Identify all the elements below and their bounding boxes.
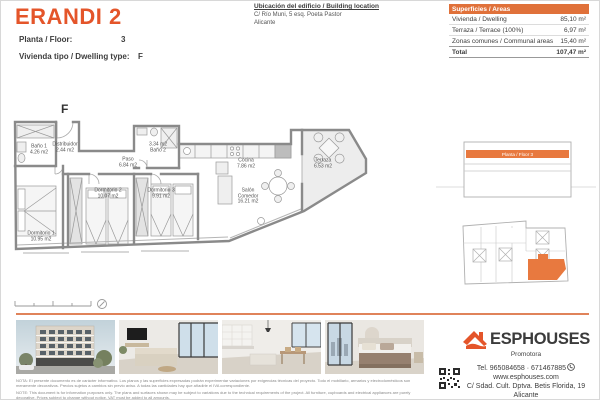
location-city: Alicante bbox=[254, 19, 424, 27]
balcony-rails bbox=[23, 251, 189, 253]
photo-bedroom bbox=[325, 320, 424, 374]
armchair bbox=[216, 162, 228, 174]
photo-strip bbox=[16, 320, 424, 374]
building-location: Ubicación del edificio / Building locati… bbox=[254, 3, 424, 27]
legal-notes: NOTA: El presente documento es de caráct… bbox=[16, 378, 428, 400]
room-label-dormitorio3: Dormitorio 39.91 m2 bbox=[147, 188, 174, 199]
table-row: Zonas comunes / Communal areas 15,40 m² bbox=[449, 36, 589, 47]
toilet bbox=[18, 154, 25, 163]
toilet bbox=[151, 128, 158, 136]
total-label: Total bbox=[452, 49, 467, 56]
photo-living-room bbox=[119, 320, 218, 374]
scale-bar bbox=[13, 297, 111, 311]
page-title: ERANDI 2 bbox=[15, 4, 122, 30]
photo-building-exterior bbox=[16, 320, 115, 374]
location-address: C/ Río Muni, 5 esq. Poeta Pastor bbox=[254, 11, 424, 19]
row-value: 6,97 m² bbox=[564, 27, 586, 34]
areas-table: Superficies / Areas Vivienda / Dwelling … bbox=[449, 4, 589, 58]
brand-subtitle: Promotora bbox=[456, 351, 596, 358]
note-english: NOTE: This document is for information p… bbox=[16, 390, 428, 400]
room-label-bano2: 3.34 m2Baño 2 bbox=[149, 142, 167, 153]
room-label-terraza: Terraza6.53 m2 bbox=[314, 158, 332, 169]
row-value: 85,10 m² bbox=[560, 16, 586, 23]
row-value: 15,40 m² bbox=[560, 38, 586, 45]
table-total-row: Total 107,47 m² bbox=[449, 47, 589, 58]
room-label-distribuidor: Distribuidor2.44 m2 bbox=[52, 142, 77, 153]
room-label-bano1: Baño 14.26 m2 bbox=[30, 144, 48, 155]
note-spanish: NOTA: El presente documento es de caráct… bbox=[16, 378, 428, 389]
brand-city: Alicante bbox=[456, 391, 596, 400]
row-label: Terraza / Terrace (100%) bbox=[452, 27, 523, 34]
brand-address: C/ Sdad. Cult. Dptva. Betis Florida, 19 bbox=[456, 382, 596, 391]
floor-row: Planta / Floor: 3 bbox=[19, 35, 72, 44]
floor-lamp bbox=[258, 218, 265, 225]
kitchen-sink bbox=[184, 148, 191, 155]
location-title: Ubicación del edificio / Building locati… bbox=[254, 3, 424, 11]
room-label-dormitorio2: Dormitorio 210.07 m2 bbox=[94, 188, 121, 199]
divider-rule bbox=[16, 313, 589, 315]
brand-logo: ESPHOUSES bbox=[456, 329, 596, 350]
building-key-diagrams: Planta / Floor 3 bbox=[436, 131, 596, 303]
room-label-paso: Paso6.84 m2 bbox=[119, 157, 137, 168]
sink bbox=[17, 142, 26, 152]
table-row: Terraza / Terrace (100%) 6,97 m² bbox=[449, 25, 589, 36]
sofa bbox=[218, 176, 232, 204]
room-label-salon-comedor: SalónComedor16.21 m2 bbox=[238, 189, 259, 206]
dwelling-type-label: Vivienda tipo / Dwelling type: bbox=[19, 52, 130, 61]
kitchen-counter bbox=[179, 144, 291, 158]
brand-block: ESPHOUSES Promotora Tel. 965084658 · 671… bbox=[456, 329, 596, 400]
row-label: Vivienda / Dwelling bbox=[452, 16, 507, 23]
floor-value: 3 bbox=[121, 35, 125, 44]
table-row: Vivienda / Dwelling 85,10 m² bbox=[449, 14, 589, 25]
dwelling-type-row: Vivienda tipo / Dwelling type: F bbox=[19, 52, 130, 61]
document-page: ERANDI 2 Planta / Floor: 3 Vivienda tipo… bbox=[0, 0, 600, 400]
brand-website: www.esphouses.com bbox=[456, 373, 596, 382]
floorplan-drawing bbox=[11, 104, 381, 256]
dining-table bbox=[269, 177, 287, 195]
photo-kitchen-dining bbox=[222, 320, 321, 374]
brand-phone-line: Tel. 965084658 · 671467885 bbox=[456, 363, 596, 373]
whatsapp-icon bbox=[567, 363, 575, 371]
brand-name: ESPHOUSES bbox=[490, 330, 590, 349]
floor-band-label: Planta / Floor 3 bbox=[502, 152, 534, 157]
brand-phone: Tel. 965084658 · 671467885 bbox=[477, 365, 566, 372]
total-value: 107,47 m² bbox=[556, 49, 586, 56]
areas-table-header: Superficies / Areas bbox=[449, 4, 589, 14]
building-elevation-diagram: Planta / Floor 3 bbox=[436, 142, 596, 197]
esphouses-house-icon bbox=[462, 329, 488, 350]
dwelling-type-value: F bbox=[138, 52, 143, 61]
site-key-plan bbox=[463, 221, 568, 284]
sink bbox=[137, 128, 147, 135]
room-label-cocina: Cocina7.86 m2 bbox=[237, 158, 255, 169]
fridge bbox=[275, 144, 291, 158]
room-label-dormitorio1: Dormitorio 110.95 m2 bbox=[27, 231, 54, 242]
floor-label: Planta / Floor: bbox=[19, 35, 72, 44]
row-label: Zonas comunes / Communal areas bbox=[452, 38, 553, 45]
